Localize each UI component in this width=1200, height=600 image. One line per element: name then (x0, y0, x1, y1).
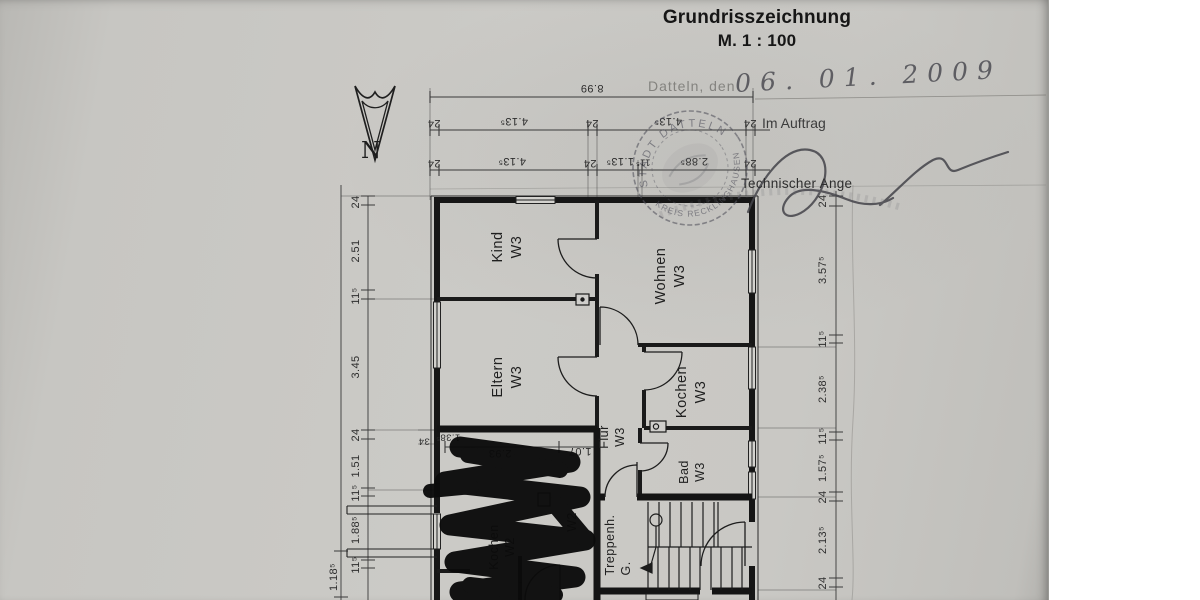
dim-label: 24 (585, 117, 598, 129)
room-label-kochen: KochenW3 (673, 366, 711, 418)
room-unit-w2: W2 (565, 512, 579, 532)
dim-label: 24 (350, 195, 362, 208)
room-label-kind: KindW3 (489, 231, 527, 262)
dim-label: 8.99 (580, 82, 603, 94)
signer-role-label: Technischer Ange (741, 176, 852, 191)
dim-label: 2.93 (488, 447, 511, 459)
dim-label: 3.45 (350, 355, 362, 378)
dim-label: 1.88⁵ (350, 516, 362, 544)
dim-label: 4.13⁵ (654, 115, 682, 127)
dim-label: 11⁵ (817, 427, 829, 444)
dim-label: 2.13⁵ (817, 526, 829, 554)
room-label-eltern: ElternW3 (489, 357, 527, 398)
dim-label: 1.18⁵ (328, 563, 340, 591)
dim-label: 24 (743, 157, 756, 169)
im-auftrag-label: Im Auftrag (762, 115, 826, 131)
date-label: Datteln, den (648, 78, 736, 94)
north-letter: N (361, 138, 381, 164)
dim-label: 1.57⁵ (817, 454, 829, 482)
dim-label: 24 (350, 428, 362, 441)
dim-label: 1.38⁵ (436, 432, 460, 443)
dim-label: 11⁵ (350, 556, 362, 573)
room-label-flur: FlurW3 (596, 425, 629, 449)
dim-label: 11⁵ (635, 157, 650, 168)
dim-label: 3.57⁵ (817, 256, 829, 284)
title-scale: M. 1 : 100 (657, 30, 857, 51)
dim-label: 1.51 (350, 454, 362, 477)
drawing-title: Grundrisszeichnung M. 1 : 100 (657, 6, 857, 51)
room-label-treppenhaus: Treppenh.G. (602, 514, 635, 575)
dim-label: 24 (817, 490, 829, 503)
room-label-kochen-w2: KochenW2 (486, 524, 519, 569)
dim-label: 24 (817, 576, 829, 589)
dim-label: 11⁵ (817, 330, 829, 347)
dim-label: 4.13⁵ (498, 155, 526, 167)
dim-label: 34 (418, 436, 429, 447)
dim-label: 2.51 (350, 239, 362, 262)
dim-label: 2.38⁵ (817, 375, 829, 403)
dim-label: 11⁵ (350, 287, 362, 304)
dim-label: 24 (743, 117, 756, 129)
dim-label: 4.13⁵ (500, 115, 528, 127)
dim-label: 11⁵ (350, 484, 362, 501)
scanned-floor-plan-page: Grundrisszeichnung M. 1 : 100 Datteln, d… (0, 0, 1200, 600)
dim-label: 1.07 (568, 445, 591, 457)
room-label-wohnen: WohnenW3 (652, 248, 690, 305)
dim-label: 1.13⁵ (606, 155, 634, 167)
title-line1: Grundrisszeichnung (657, 6, 857, 30)
dim-label: 24 (427, 117, 440, 129)
dim-label: 24 (817, 194, 829, 207)
dim-label: 24 (583, 157, 596, 169)
room-label-bad: BadW3 (676, 460, 709, 484)
scanned-paper (0, 0, 1049, 600)
dim-label: 24 (427, 157, 440, 169)
dim-label: 2.88⁵ (680, 155, 708, 167)
